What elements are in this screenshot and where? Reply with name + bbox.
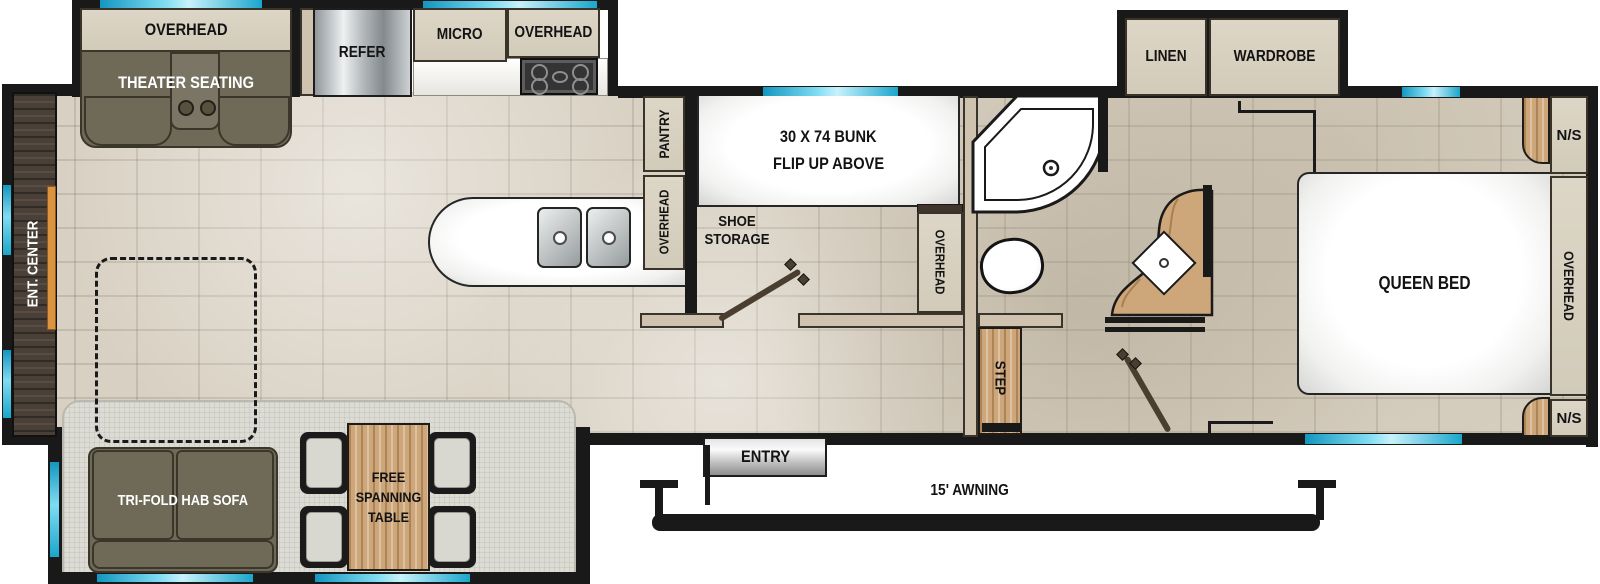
- wardrobe-label: WARDROBE: [1234, 48, 1316, 66]
- shoe-storage-label: SHOE STORAGE: [699, 213, 775, 249]
- dinette-chair: [428, 506, 476, 568]
- drain-icon: [553, 231, 567, 245]
- kitchen-overhead-cabinet: OVERHEAD: [507, 8, 600, 58]
- wall-kitchen-right-jog: [608, 0, 618, 96]
- dinette-chair: [300, 432, 348, 494]
- bunk-label-line1: 30 X 74 BUNK: [780, 127, 877, 147]
- theater-overhead-cabinet: OVERHEAD: [80, 8, 292, 52]
- theater-window: [100, 0, 262, 8]
- kitchen-overhead-label: OVERHEAD: [515, 24, 593, 42]
- entry-door-post: [705, 445, 710, 505]
- refer-label: REFER: [339, 44, 386, 62]
- bed-overhead-label: OVERHEAD: [1561, 251, 1577, 321]
- chair-cushion: [306, 512, 342, 562]
- awning-bracket-left-post: [655, 480, 663, 520]
- burner-icon: [531, 78, 548, 95]
- dinette-window-bottom-1: [97, 574, 253, 582]
- linen-cabinet: LINEN: [1125, 18, 1207, 96]
- theater-label-wrap: THEATER SEATING: [78, 68, 294, 98]
- bed-platform-line-v: [1208, 421, 1211, 433]
- closet-line-h: [1238, 110, 1316, 113]
- ent-center-label: ENT. CENTER: [25, 221, 42, 308]
- wall-bath-bottom: [978, 313, 1063, 328]
- micro-label: MICRO: [437, 26, 483, 44]
- rv-floorplan: OVERHEAD REFER MICRO OVERHEAD LINEN WARD…: [0, 0, 1600, 584]
- burner-icon: [572, 78, 589, 95]
- closet-line-v2: [1313, 110, 1316, 172]
- sofa-front-band: [92, 540, 274, 569]
- dinette-chair: [300, 506, 348, 568]
- bedroom-top-window: [1402, 87, 1460, 97]
- awning-bracket-right-post: [1316, 480, 1324, 520]
- trifold-sofa-label: TRI-FOLD HAB SOFA: [118, 492, 248, 509]
- pantry-label: PANTRY: [656, 109, 672, 158]
- free-spanning-table: FREE SPANNING TABLE: [347, 423, 430, 571]
- awning-label: 15' AWNING: [931, 482, 1009, 500]
- wardrobe-cabinet: WARDROBE: [1209, 18, 1340, 96]
- entry-door: ENTRY: [703, 437, 827, 477]
- nightstand-bottom: [1522, 397, 1550, 437]
- sink-basin-left: [537, 207, 582, 268]
- bunk-bed: 30 X 74 BUNK FLIP UP ABOVE: [697, 96, 960, 207]
- theater-seating-label: THEATER SEATING: [118, 73, 254, 93]
- ns-top-cabinet: N/S: [1550, 96, 1588, 174]
- bed-platform-line-h: [1208, 421, 1273, 424]
- burner-center-icon: [552, 71, 568, 83]
- cupholder-icon: [200, 100, 216, 116]
- chair-cushion: [434, 438, 470, 488]
- wall-bunk-bottom-left: [640, 313, 724, 328]
- queen-bed-label: QUEEN BED: [1378, 273, 1470, 294]
- dinette-chair: [428, 432, 476, 494]
- chair-cushion: [306, 438, 342, 488]
- ns-top-label: N/S: [1556, 127, 1581, 144]
- ns-bottom-label: N/S: [1556, 410, 1581, 427]
- drain-icon: [602, 231, 616, 245]
- cooktop: [520, 58, 598, 95]
- corner-shower: [963, 88, 1113, 222]
- table-label: FREE SPANNING TABLE: [353, 467, 424, 528]
- bunk-overhead-label: OVERHEAD: [933, 230, 948, 295]
- kitchen-overhead-strip-label: OVERHEAD: [657, 190, 672, 255]
- shoe-storage-area: SHOE STORAGE: [694, 208, 780, 254]
- theater-seat-left: [84, 96, 172, 146]
- cupholder-icon: [178, 100, 194, 116]
- dinette-window-bottom-2: [315, 574, 470, 582]
- bunk-label-line2: FLIP UP ABOVE: [773, 154, 884, 174]
- dinette-slide-border-right: [576, 427, 590, 584]
- linen-label: LINEN: [1145, 48, 1186, 66]
- refrigerator: REFER: [313, 8, 412, 97]
- corner-vanity: [1100, 183, 1215, 335]
- dinette-window-left: [50, 462, 59, 557]
- chair-cushion: [434, 512, 470, 562]
- entry-label: ENTRY: [740, 447, 789, 467]
- awning-label-wrap: 15' AWNING: [900, 482, 1040, 500]
- microwave-cabinet: MICRO: [413, 8, 507, 62]
- step-edge: [982, 423, 1020, 432]
- queen-bed: QUEEN BED: [1297, 172, 1550, 395]
- rear-window-1: [3, 185, 11, 255]
- bedroom-bottom-window: [1305, 434, 1462, 444]
- theater-seat-right: [218, 96, 290, 146]
- sofa-label-wrap: TRI-FOLD HAB SOFA: [86, 488, 280, 512]
- optional-furniture-outline: [95, 257, 257, 443]
- ns-bottom-cabinet: N/S: [1550, 399, 1588, 437]
- rear-window-2: [3, 350, 11, 418]
- sink-basin-right: [586, 207, 631, 268]
- nightstand-top: [1522, 96, 1550, 164]
- step-label: STEP: [992, 361, 1009, 395]
- wall-bath-bedroom-stub: [1098, 92, 1108, 172]
- awning-bar: [652, 514, 1320, 531]
- fireplace: [47, 186, 56, 330]
- theater-overhead-label: OVERHEAD: [145, 20, 228, 40]
